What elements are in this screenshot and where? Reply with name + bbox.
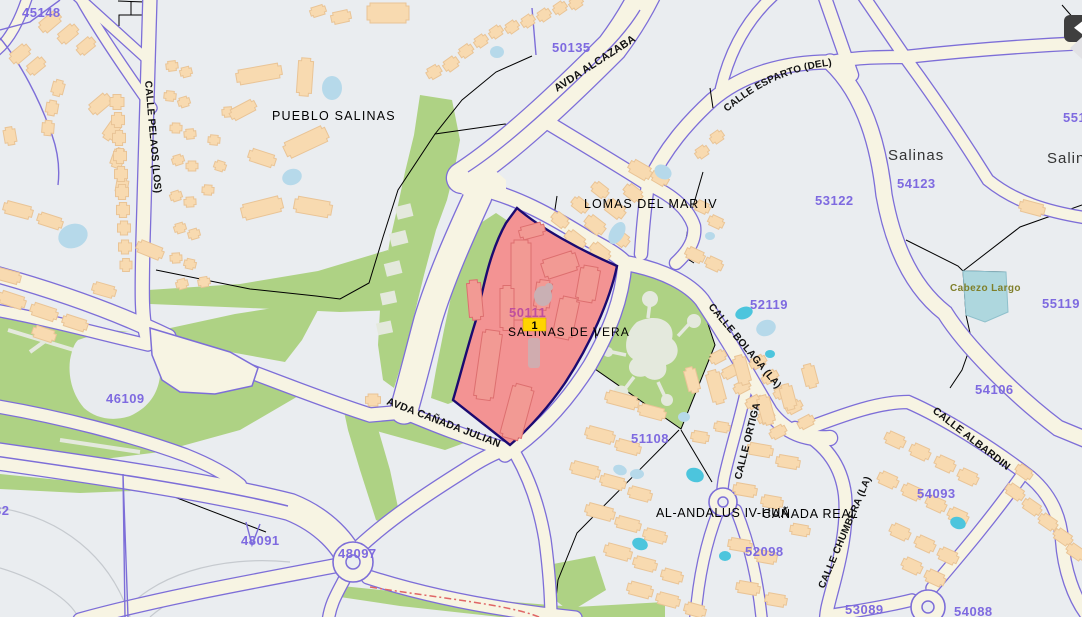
svg-text:46109: 46109 (106, 391, 145, 406)
svg-text:53122: 53122 (815, 193, 854, 208)
svg-text:48091: 48091 (241, 533, 280, 548)
svg-text:54123: 54123 (897, 176, 936, 191)
svg-text:Cabezo Largo: Cabezo Largo (950, 283, 1021, 294)
svg-text:LOMAS DEL MAR IV: LOMAS DEL MAR IV (584, 197, 718, 211)
svg-text:54093: 54093 (917, 486, 956, 501)
svg-text:53089: 53089 (845, 602, 884, 617)
svg-text:PUEBLO SALINAS: PUEBLO SALINAS (272, 109, 396, 123)
svg-text:52119: 52119 (750, 297, 788, 312)
svg-text:Salinas: Salinas (888, 147, 944, 164)
svg-text:50135: 50135 (552, 40, 591, 55)
svg-text:55119: 55119 (1042, 296, 1080, 311)
svg-text:54088: 54088 (954, 604, 993, 617)
svg-text:1: 1 (531, 320, 537, 332)
svg-text:CAÑADA REAL: CAÑADA REAL (762, 507, 858, 521)
svg-text:52098: 52098 (745, 544, 784, 559)
svg-text:48097: 48097 (338, 546, 377, 561)
svg-text:32: 32 (0, 503, 9, 518)
svg-text:51108: 51108 (631, 431, 669, 446)
svg-text:45148: 45148 (22, 5, 61, 20)
svg-text:Salinas: Salinas (1047, 150, 1082, 167)
svg-text:54106: 54106 (975, 382, 1014, 397)
svg-text:5511: 5511 (1063, 110, 1082, 125)
